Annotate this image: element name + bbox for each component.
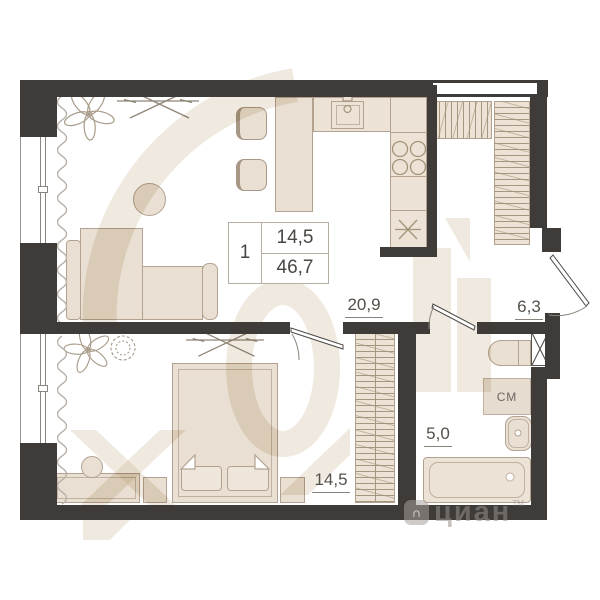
wall-left-upper xyxy=(20,80,57,137)
bench-cushion xyxy=(57,477,136,499)
wall-living-bedroom xyxy=(57,322,290,334)
label-hall-area: 6,3 xyxy=(510,297,548,320)
washing-machine: СМ xyxy=(483,378,531,415)
counter-divider xyxy=(390,210,427,211)
washing-machine-label: СМ xyxy=(484,390,530,404)
pouf xyxy=(81,456,103,478)
wall-kitchen xyxy=(427,85,437,255)
bathroom-sink-basin xyxy=(508,419,529,448)
ceiling-fan-bedroom-icon xyxy=(186,331,264,356)
toilet-bowl xyxy=(488,340,521,366)
wall-mid-center xyxy=(343,322,430,334)
door-entrance xyxy=(549,255,589,316)
chair-bottom xyxy=(236,159,267,191)
sofa-seat xyxy=(142,266,203,320)
counter-divider xyxy=(390,176,427,177)
label-bath-area: 5,0 xyxy=(419,424,457,447)
closet-right xyxy=(494,101,530,245)
cian-brand-name: циан xyxy=(434,497,511,527)
door-bathroom xyxy=(429,304,475,330)
coffee-table xyxy=(133,183,166,216)
window-living-latch xyxy=(38,186,48,193)
pillow-left xyxy=(181,466,222,491)
cian-brand-watermark: ∩ циан TM xyxy=(404,497,524,527)
label-bedroom-area: 14,5 xyxy=(308,470,354,493)
wall-left-middle xyxy=(20,243,57,334)
window-bedroom-latch xyxy=(38,385,48,392)
wall-kitchen-stub xyxy=(380,247,437,257)
kitchen-counter-right xyxy=(390,97,427,248)
bedroom-side-table xyxy=(143,477,167,503)
label-living-area: 20,9 xyxy=(341,295,387,318)
sofa-armrest-right xyxy=(202,263,218,320)
cian-trademark: TM xyxy=(512,499,524,508)
wall-right-closet xyxy=(530,97,547,228)
cian-logo-icon: ∩ xyxy=(404,500,429,525)
wall-hall-bath xyxy=(477,322,552,334)
kitchen-sink-basin xyxy=(336,105,360,125)
closet-divider xyxy=(375,334,376,502)
apartment-info-box: 1 14,5 46,7 xyxy=(228,222,329,284)
bush-bedroom-icon xyxy=(111,336,135,360)
top-wall-window xyxy=(433,83,537,94)
total-area-value: 46,7 xyxy=(262,254,328,284)
wall-entry-notch xyxy=(542,228,561,252)
living-area-value: 14,5 xyxy=(262,223,328,254)
closet-bedroom xyxy=(355,333,395,503)
toilet-tank xyxy=(518,340,531,366)
nightstand xyxy=(280,477,305,503)
closet-top xyxy=(433,101,492,139)
sofa-armrest-left xyxy=(66,240,81,320)
door-bedroom xyxy=(291,328,343,360)
counter-divider xyxy=(390,132,427,133)
wall-bedroom-bath xyxy=(398,334,416,505)
chair-top xyxy=(236,107,267,140)
floor-plan: СМ xyxy=(0,0,600,600)
rooms-count: 1 xyxy=(229,223,262,283)
wall-right-bath xyxy=(531,375,547,505)
dining-table xyxy=(275,97,313,212)
bathtub-basin xyxy=(429,462,525,498)
pillow-right xyxy=(227,466,269,491)
sofa-chaise xyxy=(80,228,143,320)
